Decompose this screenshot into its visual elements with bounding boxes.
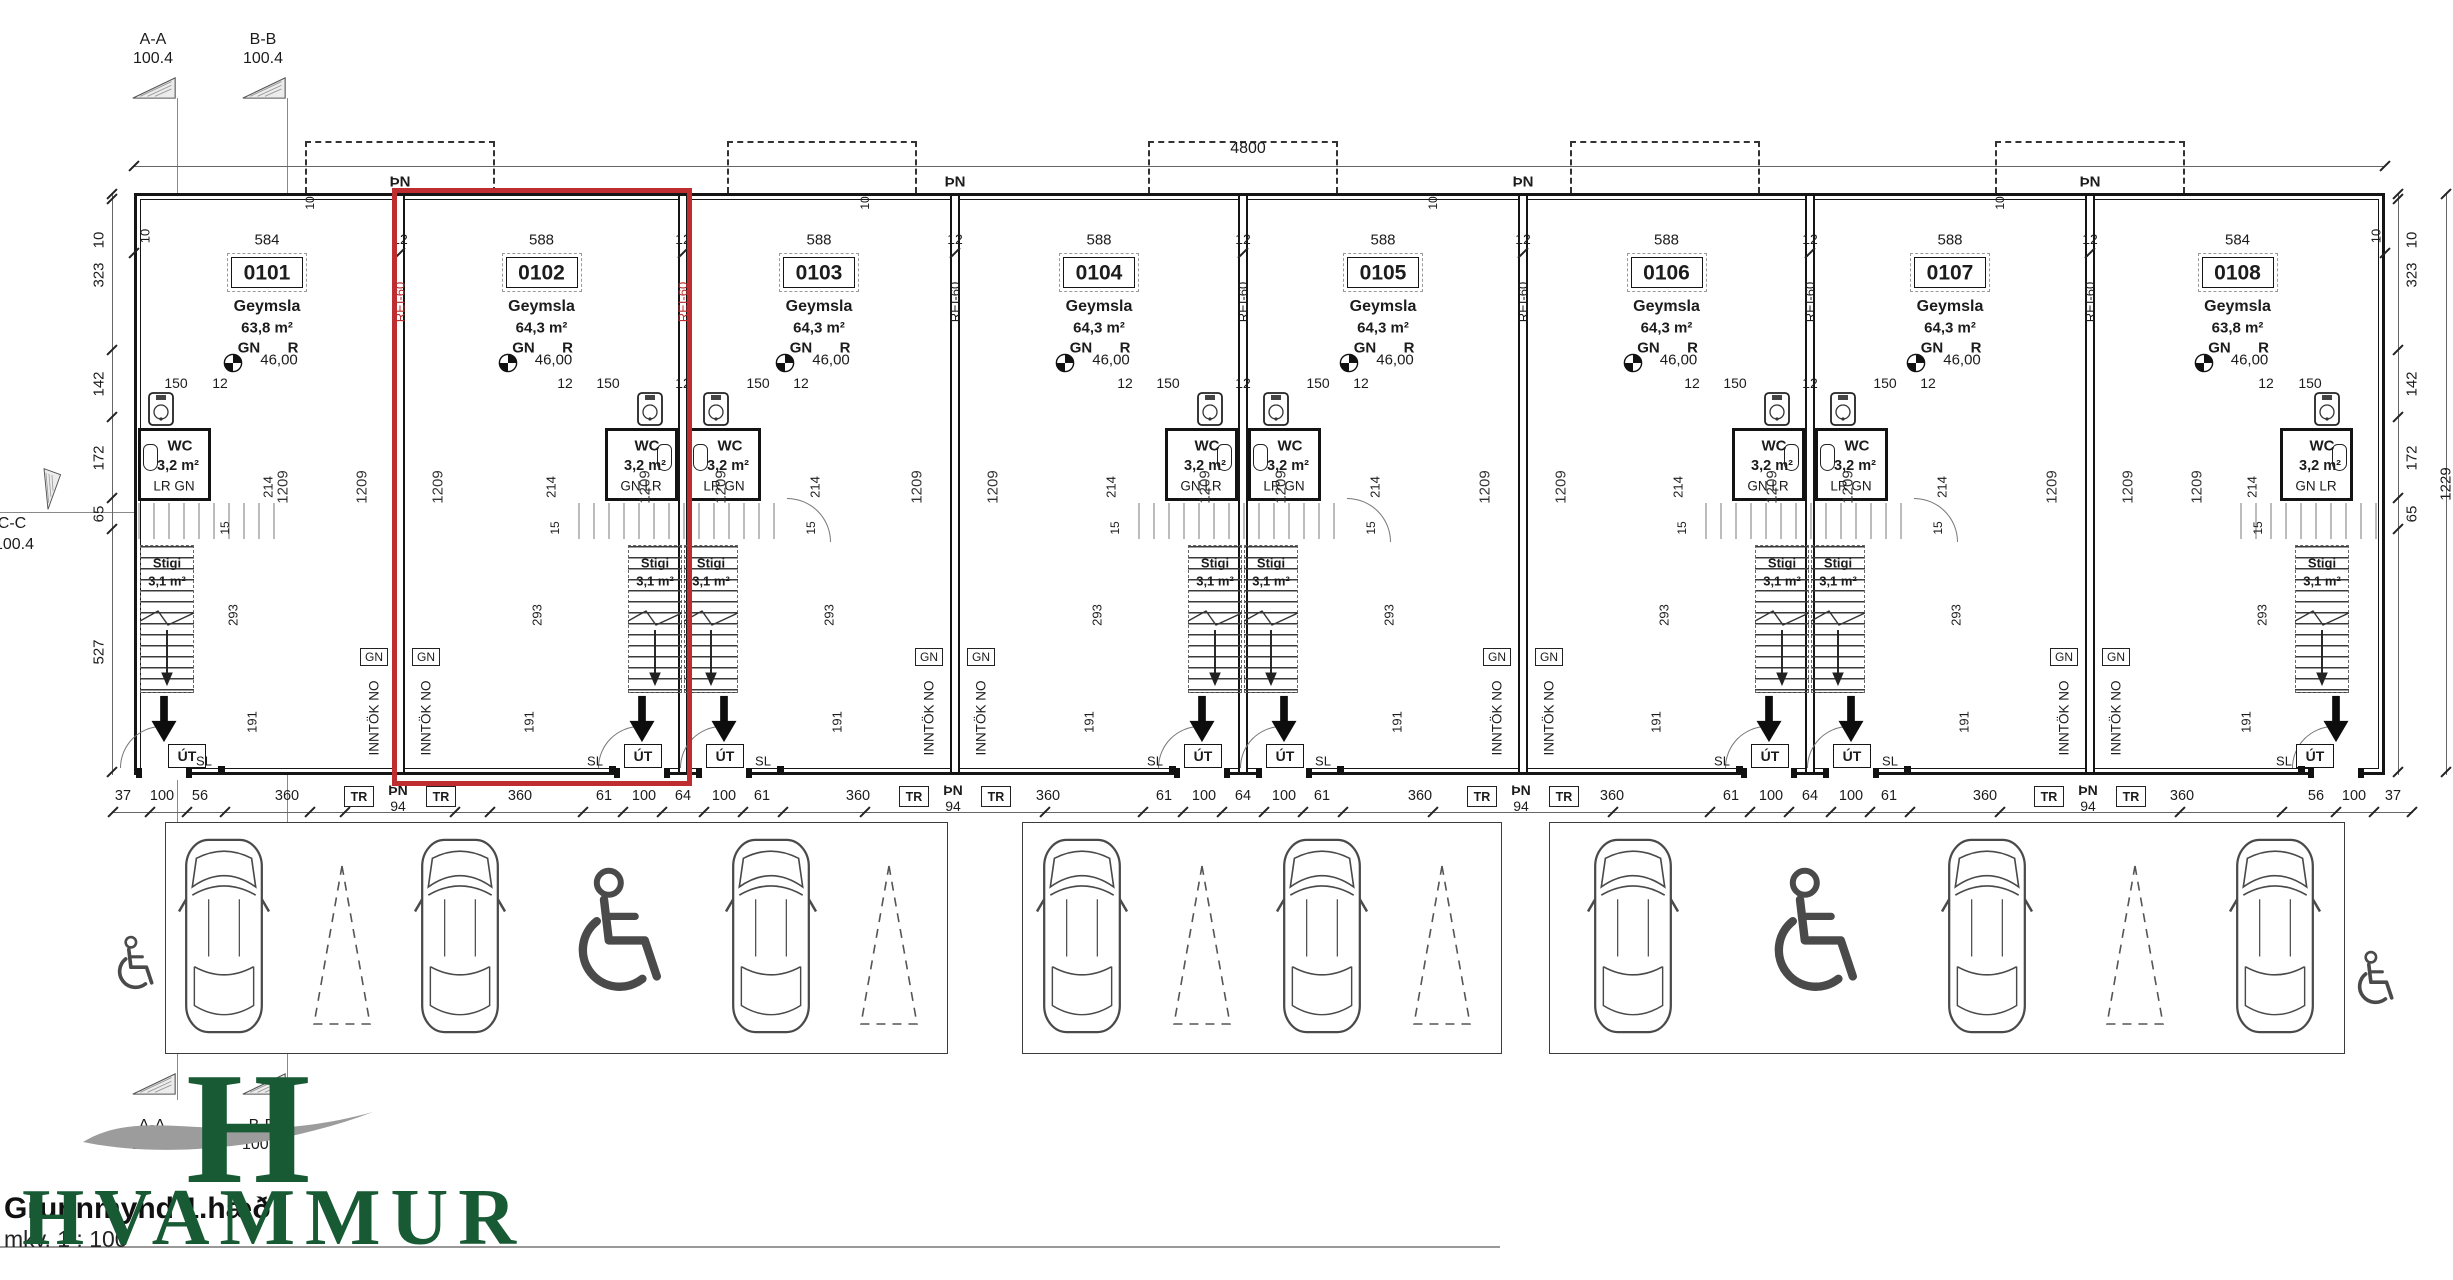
depth-dim: 1209	[2190, 470, 2205, 503]
stair-area-label: 3,1 m²	[2303, 575, 2341, 588]
bottom-dim: 37	[2385, 789, 2401, 804]
gn-box-label: GN	[1488, 651, 1506, 663]
depth-dim: 1209	[910, 470, 925, 503]
stair-label: Stigi	[697, 557, 725, 570]
gn-box-label: GN	[920, 651, 938, 663]
left-side-dim: 527	[92, 639, 107, 664]
stair-label: Stigi	[2308, 557, 2336, 570]
depth-dim: 1209	[276, 470, 291, 503]
door-jamb	[1873, 768, 1879, 778]
door-side-dim: 191	[1650, 711, 1663, 733]
parking-triangle-marking	[1410, 860, 1474, 1030]
section-flag-icon: "0 0 50 26">	[26, 470, 72, 494]
wall-offset-dim: 10	[1994, 196, 2006, 209]
wc-label: WC	[2310, 439, 2335, 454]
unit-number: 0108	[2214, 263, 2261, 284]
door-jamb	[2308, 768, 2314, 778]
highlighted-unit-outline	[392, 188, 692, 786]
intake-label: INNTÖK NO	[2109, 680, 2123, 755]
section-marker-level: 100.4	[243, 51, 283, 67]
door-jamb	[136, 768, 142, 778]
car-icon	[1276, 832, 1368, 1040]
wc-area-label: 3,2 m²	[1184, 459, 1226, 474]
intake-label: INNTÖK NO	[1490, 680, 1504, 755]
depth-dim: 1209	[355, 470, 370, 503]
wall-offset-dim: 10	[859, 196, 871, 209]
gn-box-label: GN	[365, 651, 383, 663]
wc-area-label: 3,2 m²	[1751, 459, 1793, 474]
exit-label: ÚT	[1194, 749, 1213, 763]
wc-label: WC	[1278, 439, 1303, 454]
unit-number: 0101	[244, 263, 291, 284]
stair-height-dim: 293	[1091, 604, 1104, 626]
wc-side-dim: 214	[1936, 476, 1949, 498]
wc-width-dim: 12	[1802, 376, 1818, 390]
stair-break-icon	[684, 608, 738, 628]
stair-direction-arrow-icon	[1831, 630, 1845, 688]
wc-wall-dim: 12	[2258, 376, 2274, 390]
corner-dim: 10	[139, 229, 152, 243]
right-total-dim: 1229	[2439, 467, 2453, 500]
logo-swoosh-icon	[78, 1096, 378, 1166]
door-jamb	[1256, 768, 1262, 778]
section-marker-level: 100.4	[242, 1137, 282, 1153]
left-side-dim: 65	[92, 506, 107, 523]
door-opening	[1746, 768, 1792, 780]
section-marker-label: A-A	[139, 1118, 166, 1134]
wc-width-dim: 150	[746, 376, 769, 390]
door-side-dim: 191	[1083, 711, 1096, 733]
drawing-title: Grunnmynd 1.hæð	[4, 1192, 271, 1226]
bottom-dim: 360	[1408, 789, 1432, 804]
unit-gn-mark: GN	[1354, 341, 1377, 356]
wc-sub-label: GN LR	[1747, 479, 1788, 493]
wall-thickness-dim: 12	[1515, 232, 1531, 246]
unit-width-dim: 588	[1937, 233, 1962, 248]
landing-dim: 15	[2252, 521, 2264, 534]
canopy-dashed-outline	[727, 141, 917, 193]
sink-icon	[1263, 392, 1289, 426]
wc-width-dim: 12	[1920, 376, 1936, 390]
wc-sub-label: GN LR	[1180, 479, 1221, 493]
intake-label: INNTÖK NO	[922, 680, 936, 755]
tr-label: TR	[1556, 791, 1573, 804]
pn-number: 94	[945, 799, 961, 813]
wc-width-dim: 150	[164, 376, 187, 390]
wc-width-dim: 150	[1156, 376, 1179, 390]
sl-label: SL	[1315, 755, 1331, 768]
left-side-dim: 172	[92, 445, 107, 470]
unit-area-label: 63,8 m²	[241, 321, 293, 336]
exit-label: ÚT	[1843, 749, 1862, 763]
unit-gn-mark: GN	[790, 341, 813, 356]
landing-dim: 15	[219, 521, 231, 534]
unit-gn-mark: GN	[1921, 341, 1944, 356]
door-jamb	[1224, 768, 1230, 778]
wall-thickness-dim: 12	[2082, 232, 2098, 246]
section-flag-icon	[241, 76, 287, 100]
wc-sub-label: LR GN	[703, 479, 744, 493]
wc-side-dim: 214	[1672, 476, 1685, 498]
tr-label: TR	[988, 791, 1005, 804]
bottom-dim: 61	[1156, 789, 1172, 804]
bottom-dim: 360	[508, 789, 532, 804]
sl-label: SL	[755, 755, 771, 768]
wc-label: WC	[1845, 439, 1870, 454]
unit-type-label: Geymsla	[2204, 299, 2271, 315]
wheelchair-icon	[108, 935, 160, 993]
stair-area-label: 3,1 m²	[1819, 575, 1857, 588]
unit-number: 0107	[1927, 263, 1974, 284]
tr-label: TR	[1474, 791, 1491, 804]
unit-area-label: 64,3 m²	[1924, 321, 1976, 336]
stair-landing	[1138, 503, 1348, 539]
landing-dim: 15	[1676, 521, 1688, 534]
sl-fixture	[1337, 766, 1344, 773]
stair-direction-arrow-icon	[1208, 630, 1222, 688]
wc-wall-dim: 12	[212, 376, 228, 390]
unit-level-value: 46,00	[812, 353, 850, 368]
exit-label: ÚT	[2306, 749, 2325, 763]
sl-label: SL	[1714, 755, 1730, 768]
wc-width-dim: 150	[1873, 376, 1896, 390]
unit-type-label: Geymsla	[1066, 299, 1133, 315]
exit-arrow-icon	[1189, 694, 1215, 744]
unit-width-dim: 588	[806, 233, 831, 248]
sl-fixture	[2298, 766, 2305, 773]
fire-rating-label: REI-60	[1237, 282, 1250, 322]
unit-gn-mark: GN	[1637, 341, 1660, 356]
unit-width-dim: 584	[254, 233, 279, 248]
wall-offset-dim: 10	[1427, 196, 1439, 209]
stair-landing	[138, 503, 283, 539]
gn-box-label: GN	[2055, 651, 2073, 663]
door-side-dim: 191	[1958, 711, 1971, 733]
bottom-dim: 100	[1272, 789, 1296, 804]
fire-rating-label: REI-60	[1517, 282, 1530, 322]
door-side-dim: 191	[1391, 711, 1404, 733]
door-opening	[1828, 768, 1874, 780]
wc-width-dim: 12	[1117, 376, 1133, 390]
intake-label: INNTÖK NO	[2057, 680, 2071, 755]
corner-dim: 10	[2370, 229, 2383, 243]
exit-arrow-icon	[1756, 694, 1782, 744]
door-jamb	[1791, 768, 1797, 778]
tr-label: TR	[351, 791, 368, 804]
unit-level-value: 46,00	[1943, 353, 1981, 368]
sl-fixture	[1904, 766, 1911, 773]
wc-width-dim: 12	[1684, 376, 1700, 390]
right-side-dim: 323	[2405, 262, 2420, 287]
gn-box-label: GN	[972, 651, 990, 663]
unit-width-dim: 588	[1086, 233, 1111, 248]
stair-label: Stigi	[1257, 557, 1285, 570]
unit-type-label: Geymsla	[1917, 299, 1984, 315]
sl-fixture	[218, 766, 225, 773]
stair-direction-arrow-icon	[160, 630, 174, 688]
unit-gn-mark: GN	[2208, 341, 2231, 356]
bottom-dim: 64	[675, 789, 691, 804]
section-marker-label: B-B	[250, 32, 277, 48]
bottom-dim: 61	[1881, 789, 1897, 804]
tr-label: TR	[433, 791, 450, 804]
pn-number: 94	[390, 799, 406, 813]
car-icon	[725, 832, 817, 1040]
stair-direction-arrow-icon	[1264, 630, 1278, 688]
bottom-dim: 100	[1192, 789, 1216, 804]
sl-label: SL	[1882, 755, 1898, 768]
exit-label: ÚT	[716, 749, 735, 763]
toilet-icon	[693, 444, 708, 471]
tr-label: TR	[2041, 791, 2058, 804]
bottom-dim: 360	[846, 789, 870, 804]
sink-icon	[1764, 392, 1790, 426]
pn-label: ÞN	[2078, 783, 2097, 797]
unit-area-label: 64,3 m²	[793, 321, 845, 336]
wc-sub-label: GN LR	[2295, 479, 2336, 493]
unit-level-value: 46,00	[2231, 353, 2269, 368]
intake-label: INNTÖK NO	[1542, 680, 1556, 755]
door-opening	[1179, 768, 1225, 780]
unit-gn-mark: GN	[1070, 341, 1093, 356]
door-jamb	[186, 768, 192, 778]
left-side-dim: 142	[92, 371, 107, 396]
wc-sub-label: LR GN	[153, 479, 194, 493]
door-jamb	[746, 768, 752, 778]
wc-width-dim: 12	[793, 376, 809, 390]
right-side-dim: 10	[2405, 232, 2420, 249]
toilet-icon	[1253, 444, 1268, 471]
pn-number: 94	[2080, 799, 2096, 813]
fire-rating-label: REI-60	[2084, 282, 2097, 322]
depth-dim: 1209	[2045, 470, 2060, 503]
stair-break-icon	[1755, 608, 1809, 628]
wc-area-label: 3,2 m²	[157, 459, 199, 474]
party-wall-top-label: ÞN	[2080, 175, 2101, 190]
stair-break-icon	[1188, 608, 1242, 628]
parking-triangle-marking	[310, 860, 374, 1030]
pn-label: ÞN	[943, 783, 962, 797]
right-side-dim: 172	[2405, 445, 2420, 470]
unit-level-value: 46,00	[1376, 353, 1414, 368]
stair-area-label: 3,1 m²	[148, 575, 186, 588]
wc-label: WC	[1195, 439, 1220, 454]
sl-label: SL	[196, 755, 212, 768]
sl-label: SL	[2276, 755, 2292, 768]
tr-label: TR	[2123, 791, 2140, 804]
wc-width-dim: 12	[1235, 376, 1251, 390]
car-icon	[2229, 832, 2321, 1040]
bottom-dim: 56	[2308, 789, 2324, 804]
sink-icon	[2314, 392, 2340, 426]
sink-icon	[1197, 392, 1223, 426]
stair-label: Stigi	[1824, 557, 1852, 570]
bottom-dim: 56	[192, 789, 208, 804]
landing-dim: 15	[1365, 521, 1377, 534]
bottom-dim: 100	[150, 789, 174, 804]
section-marker-label: A-A	[140, 32, 167, 48]
wc-label: WC	[1762, 439, 1787, 454]
bottom-dim: 360	[2170, 789, 2194, 804]
bottom-dim: 61	[596, 789, 612, 804]
stair-break-icon	[140, 608, 194, 628]
sl-fixture	[1736, 766, 1743, 773]
section-marker-label: B-B	[249, 1118, 276, 1134]
parking-triangle-marking	[1170, 860, 1234, 1030]
sink-icon	[703, 392, 729, 426]
unit-type-label: Geymsla	[1633, 299, 1700, 315]
exit-arrow-icon	[2323, 694, 2349, 744]
bottom-dim: 64	[1235, 789, 1251, 804]
landing-dim: 15	[1109, 521, 1121, 534]
unit-gn-mark: GN	[238, 341, 261, 356]
depth-dim: 1209	[1478, 470, 1493, 503]
door-opening	[141, 768, 187, 780]
bottom-dim: 61	[754, 789, 770, 804]
stair-height-dim: 293	[1950, 604, 1963, 626]
sink-icon	[148, 392, 174, 426]
car-icon	[1941, 832, 2033, 1040]
bottom-dim: 100	[2342, 789, 2366, 804]
canopy-dashed-outline	[1570, 141, 1760, 193]
stair-landing	[1705, 503, 1915, 539]
car-icon	[414, 832, 506, 1040]
stair-label: Stigi	[1201, 557, 1229, 570]
wc-side-dim: 214	[2246, 476, 2259, 498]
wc-label: WC	[718, 439, 743, 454]
wall-thickness-dim: 12	[1235, 232, 1251, 246]
gn-box-label: GN	[1540, 651, 1558, 663]
exit-arrow-icon	[151, 694, 177, 744]
fire-rating-label: REI-60	[949, 282, 962, 322]
stair-area-label: 3,1 m²	[1196, 575, 1234, 588]
wc-label: WC	[168, 439, 193, 454]
car-icon	[1587, 832, 1679, 1040]
unit-number: 0103	[796, 263, 843, 284]
unit-area-label: 64,3 m²	[1641, 321, 1693, 336]
bottom-dim: 61	[1723, 789, 1739, 804]
bottom-dim: 100	[1759, 789, 1783, 804]
sl-label: SL	[1147, 755, 1163, 768]
door-side-dim: 191	[246, 711, 259, 733]
stair-height-dim: 293	[823, 604, 836, 626]
door-jamb	[696, 768, 702, 778]
car-icon	[178, 832, 270, 1040]
landing-dim: 15	[1932, 521, 1944, 534]
wall-thickness-dim: 12	[1802, 232, 1818, 246]
sl-fixture	[777, 766, 784, 773]
wc-width-dim: 150	[2298, 376, 2321, 390]
wc-area-label: 3,2 m²	[707, 459, 749, 474]
depth-dim: 1209	[2121, 470, 2136, 503]
unit-level-value: 46,00	[1092, 353, 1130, 368]
parking-triangle-marking	[857, 860, 921, 1030]
bottom-dim: 37	[115, 789, 131, 804]
wc-area-label: 3,2 m²	[1834, 459, 1876, 474]
stair-direction-arrow-icon	[2315, 630, 2329, 688]
stair-height-dim: 293	[227, 604, 240, 626]
left-side-dim: 323	[92, 262, 107, 287]
door-jamb	[1306, 768, 1312, 778]
drawing-scale-label: mkv. 1 : 100	[4, 1226, 128, 1253]
bottom-dim: 100	[712, 789, 736, 804]
bottom-dim: 100	[1839, 789, 1863, 804]
section-marker-label: C-C	[0, 516, 26, 532]
intake-label: INNTÖK NO	[367, 680, 381, 755]
bottom-dim: 61	[1314, 789, 1330, 804]
wheelchair-icon	[2348, 950, 2400, 1008]
door-jamb	[2358, 768, 2364, 778]
wc-side-dim: 214	[1105, 476, 1118, 498]
wc-area-label: 3,2 m²	[1267, 459, 1309, 474]
left-side-dim: 10	[92, 232, 107, 249]
unit-type-label: Geymsla	[1350, 299, 1417, 315]
stair-label: Stigi	[153, 557, 181, 570]
stair-break-icon	[1811, 608, 1865, 628]
section-flag-icon	[131, 1072, 177, 1096]
unit-level-value: 46,00	[260, 353, 298, 368]
section-marker-level: 100.4	[0, 537, 34, 553]
bottom-dim: 64	[1802, 789, 1818, 804]
depth-dim: 1209	[1554, 470, 1569, 503]
dim-line	[112, 193, 113, 775]
stair-height-dim: 293	[2256, 604, 2269, 626]
right-side-dim: 142	[2405, 371, 2420, 396]
party-wall-top-label: ÞN	[945, 175, 966, 190]
wc-side-dim: 214	[809, 476, 822, 498]
dim-line	[2398, 193, 2399, 775]
door-side-dim: 191	[2240, 711, 2253, 733]
unit-area-label: 64,3 m²	[1073, 321, 1125, 336]
right-side-dim: 65	[2405, 506, 2420, 523]
unit-type-label: Geymsla	[234, 299, 301, 315]
landing-dim: 15	[805, 521, 817, 534]
sl-fixture	[1169, 766, 1176, 773]
wc-width-dim: 150	[1306, 376, 1329, 390]
exit-label: ÚT	[178, 749, 197, 763]
intake-label: INNTÖK NO	[974, 680, 988, 755]
floor-plan-canvas: Grunnmynd 1.hæð mkv. 1 : 100 H HVAMMUR A…	[0, 0, 2453, 1280]
section-line	[0, 512, 134, 513]
stair-break-icon	[1244, 608, 1298, 628]
unit-level-value: 46,00	[1660, 353, 1698, 368]
section-marker-level: 100.4	[132, 1137, 172, 1153]
wall-offset-dim: 10	[304, 196, 316, 209]
door-opening	[1261, 768, 1307, 780]
wc-sub-label: LR GN	[1263, 479, 1304, 493]
section-flag-icon	[131, 76, 177, 100]
bottom-dim: 100	[632, 789, 656, 804]
bottom-dim: 360	[1036, 789, 1060, 804]
depth-dim: 1209	[986, 470, 1001, 503]
bottom-dim: 360	[1600, 789, 1624, 804]
toilet-icon	[143, 444, 158, 471]
door-opening	[2313, 768, 2359, 780]
stair-area-label: 3,1 m²	[692, 575, 730, 588]
party-wall-top-label: ÞN	[1513, 175, 1534, 190]
bottom-dim: 360	[1973, 789, 1997, 804]
handicap-parking-icon	[556, 866, 676, 998]
fire-rating-label: REI-60	[1804, 282, 1817, 322]
overall-width-dim: 4800	[1230, 141, 1266, 157]
stair-direction-arrow-icon	[1775, 630, 1789, 688]
door-jamb	[1823, 768, 1829, 778]
exit-arrow-icon	[1271, 694, 1297, 744]
unit-width-dim: 588	[1654, 233, 1679, 248]
pn-number: 94	[1513, 799, 1529, 813]
wc-width-dim: 150	[1723, 376, 1746, 390]
stair-area-label: 3,1 m²	[1252, 575, 1290, 588]
